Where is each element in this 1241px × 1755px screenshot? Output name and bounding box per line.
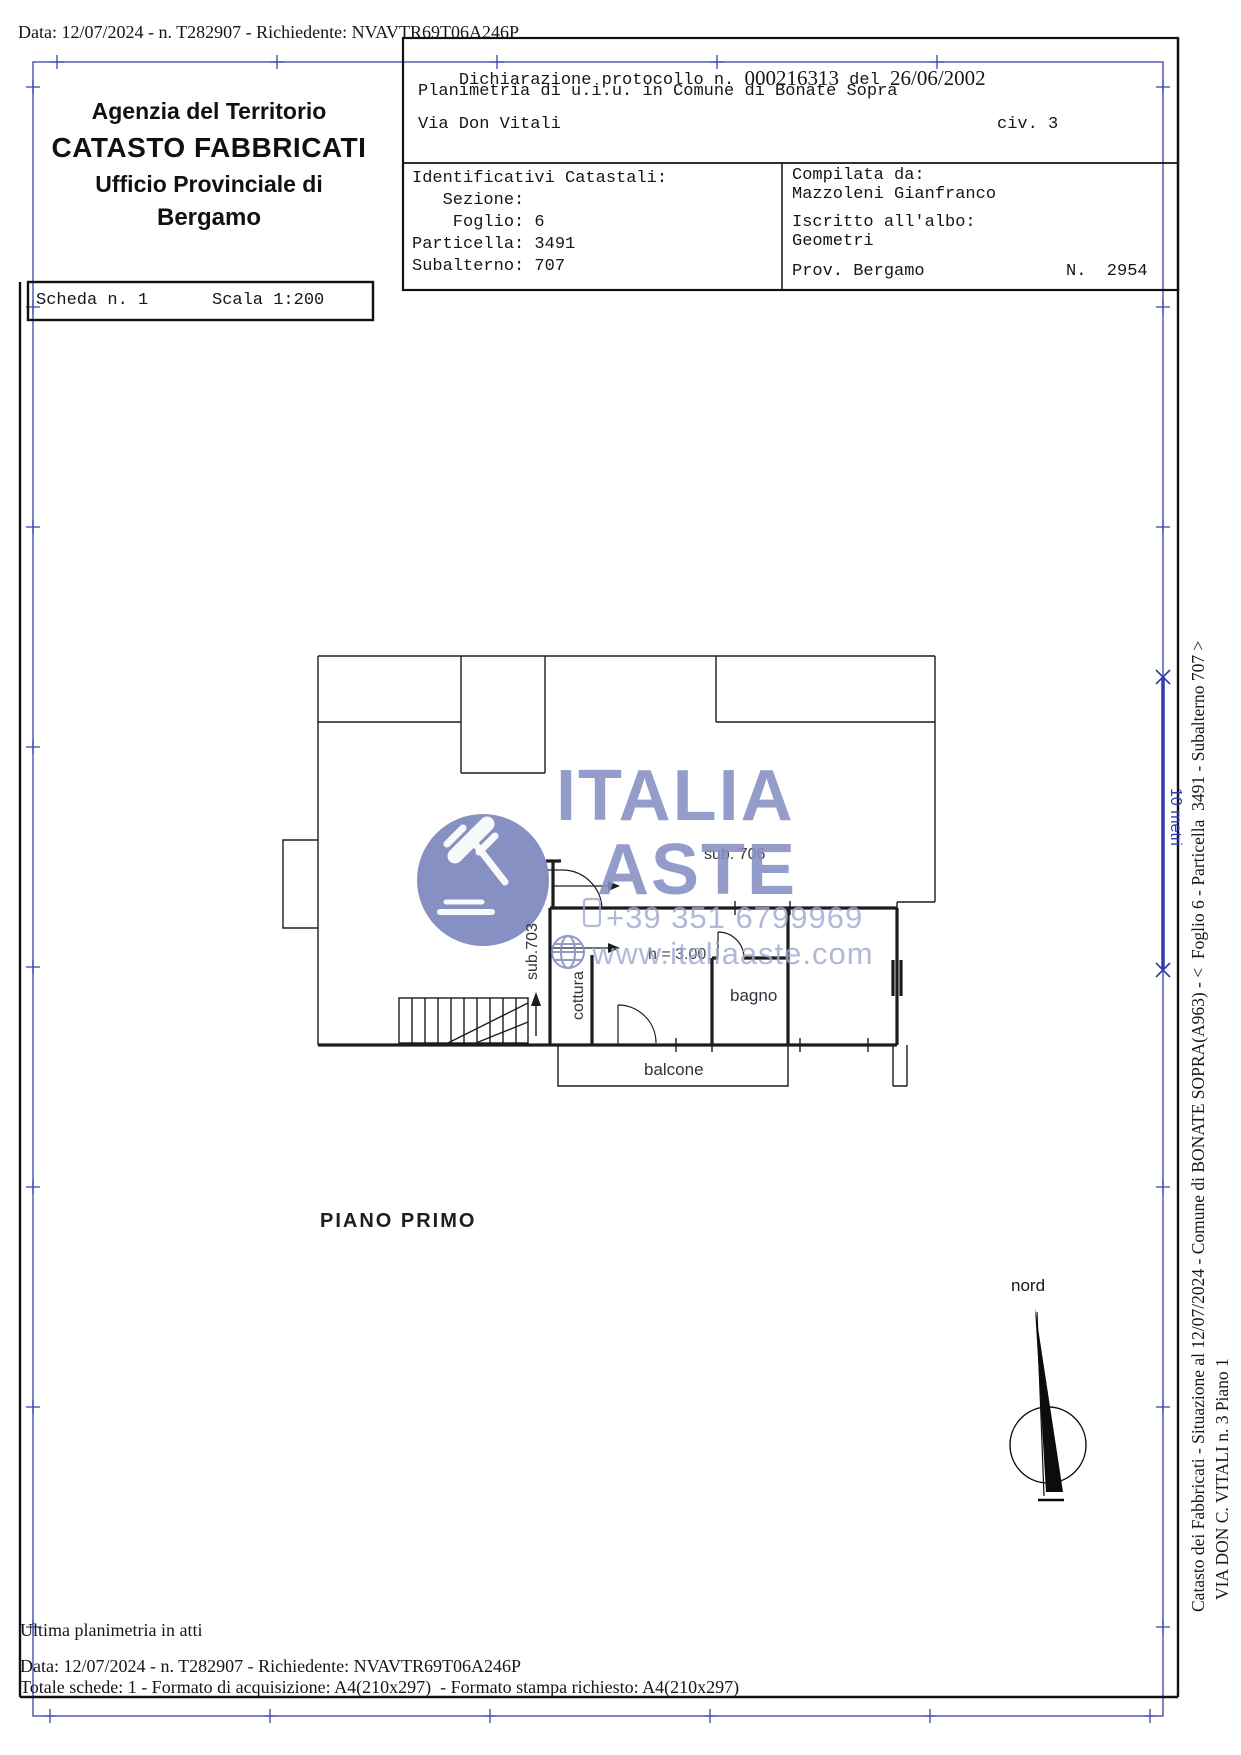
identifiers-foglio: Foglio: 6 bbox=[412, 213, 545, 232]
civic-number: civ. 3 bbox=[997, 115, 1058, 134]
watermark-brand-line1: ITALIA bbox=[556, 760, 795, 832]
agency-line3: Ufficio Provinciale di bbox=[48, 171, 370, 198]
compiler-label: Compilata da: bbox=[792, 166, 925, 185]
footer-totale-schede: Totale schede: 1 - Formato di acquisizio… bbox=[20, 1677, 739, 1698]
agency-line2: CATASTO FABBRICATI bbox=[48, 132, 370, 164]
compiler-province: Prov. Bergamo bbox=[792, 262, 925, 281]
footer-data-line: Data: 12/07/2024 - n. T282907 - Richiede… bbox=[20, 1656, 521, 1677]
scheda-number: Scheda n. 1 bbox=[36, 291, 148, 310]
floor-title: PIANO PRIMO bbox=[320, 1210, 476, 1233]
protocol-date: 26/06/2002 bbox=[890, 66, 986, 90]
cadastral-document-page: Data: 12/07/2024 - n. T282907 - Richiede… bbox=[0, 0, 1241, 1755]
watermark-globe-icon bbox=[552, 936, 584, 968]
identifiers-sezione: Sezione: bbox=[412, 191, 524, 210]
label-sub703: sub.703 bbox=[524, 923, 542, 980]
compiler-name: Mazzoleni Gianfranco bbox=[792, 185, 996, 204]
label-cottura: cottura bbox=[570, 971, 588, 1020]
compass-north bbox=[1010, 1308, 1086, 1500]
agency-header: Agenzia del Territorio CATASTO FABBRICAT… bbox=[48, 98, 370, 232]
identifiers-subalterno: Subalterno: 707 bbox=[412, 257, 565, 276]
watermark-brand-line2: ASTE bbox=[597, 834, 797, 906]
identifiers-particella: Particella: 3491 bbox=[412, 235, 575, 254]
margin-note-line2: VIA DON C. VITALI n. 3 Piano 1 bbox=[1212, 1358, 1233, 1600]
watermark-phone: +39 351 6799969 bbox=[606, 900, 863, 936]
agency-line1: Agenzia del Territorio bbox=[48, 98, 370, 125]
watermark-website: www.italiaaste.com bbox=[592, 936, 874, 972]
agency-line4: Bergamo bbox=[48, 204, 370, 232]
identifiers-title: Identificativi Catastali: bbox=[412, 169, 667, 188]
north-label: nord bbox=[1011, 1276, 1045, 1296]
cadastral-identifiers: Identificativi Catastali: Sezione: Fogli… bbox=[412, 168, 667, 278]
scale-bar-label: 10 metri bbox=[1166, 788, 1184, 846]
compiler-albo-label: Iscritto all'albo: bbox=[792, 213, 976, 232]
footer-ultima-planimetria: Ultima planimetria in atti bbox=[20, 1620, 202, 1641]
planimetria-line: Planimetria di u.i.u. in Comune di Bonat… bbox=[418, 82, 897, 101]
stairs bbox=[399, 998, 528, 1043]
label-balcone: balcone bbox=[644, 1060, 704, 1080]
street-address: Via Don Vitali bbox=[418, 115, 561, 134]
compiler-register-number: N. 2954 bbox=[1066, 262, 1148, 281]
margin-note-line1: Catasto dei Fabbricati - Situazione al 1… bbox=[1188, 641, 1209, 1612]
compiler-albo: Geometri bbox=[792, 232, 874, 251]
scheda-scale: Scala 1:200 bbox=[212, 291, 324, 310]
label-bagno: bagno bbox=[730, 986, 777, 1006]
